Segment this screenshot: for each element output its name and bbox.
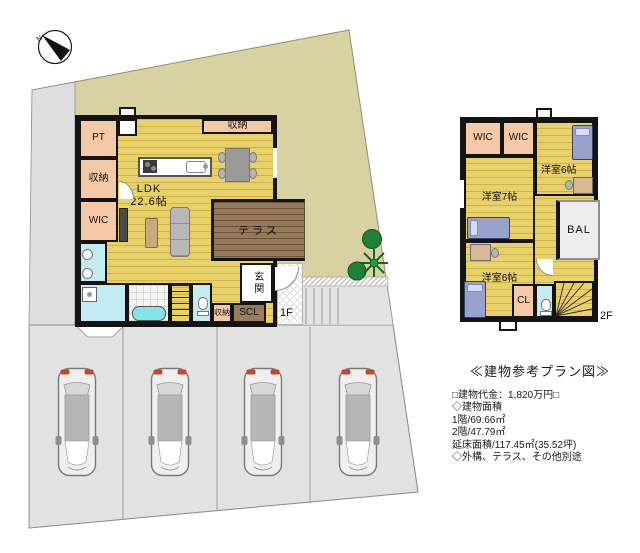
total-area: 延床面積/117.45㎡(35.52坪) [452, 440, 628, 452]
floor2-tag: 2F [600, 310, 613, 322]
stove-burner [151, 166, 156, 171]
bed-pillow [467, 284, 483, 292]
dining-table [225, 148, 250, 182]
bed-pillow [470, 220, 478, 236]
balcony-label: BAL [567, 224, 591, 236]
toilet-tank [197, 311, 209, 316]
room-wic-1f-label: WIC [89, 216, 108, 227]
toilet-tank [540, 311, 552, 316]
bathtub-icon [132, 306, 166, 321]
kitchen-counter [138, 157, 212, 177]
room-laundry [79, 283, 127, 323]
room-wic2f-2-label: WIC [509, 133, 528, 144]
price-line: □建物代金：1,820万円□ [452, 390, 628, 402]
toilet-icon [198, 297, 208, 310]
terrace: テラス [211, 199, 305, 261]
bay-window-top-2f [536, 108, 552, 119]
plan-info-block: ≪建物参考プラン図≫ □建物代金：1,820万円□ ◇建物面積 1階/69.66… [452, 361, 628, 464]
low-table [145, 218, 158, 248]
compass: N [36, 31, 72, 64]
side-path [29, 82, 75, 325]
shrub-icon [348, 262, 366, 280]
desk-chair [565, 180, 573, 190]
room-entrance: 玄関 [240, 263, 273, 303]
toilet-icon [541, 299, 551, 311]
room-pt: PT [79, 119, 118, 158]
room-cl: CL [512, 284, 535, 318]
sink-icon [82, 249, 93, 260]
room-bedroom6-top-label: 洋室6帖 [541, 166, 577, 177]
hall-door-arc [536, 259, 553, 276]
window-2f-left [460, 180, 464, 208]
note-line: ◇外構、テラス、その他別途 [452, 452, 628, 464]
bed [467, 217, 510, 239]
room-storage-left-label: 収納 [89, 174, 109, 185]
floor2-area: 2階/47.79㎡ [452, 427, 628, 439]
dining-chair [249, 168, 257, 179]
bay-window-top-1f [119, 107, 136, 117]
room-washroom [79, 242, 107, 283]
window-1f-right [273, 148, 277, 178]
sofa [170, 207, 190, 257]
area-heading: ◇建物面積 [452, 402, 628, 414]
room-wic2f-2: WIC [502, 121, 535, 156]
room-toilet-2f [535, 284, 554, 318]
room-storage-small-label: 収納 [214, 309, 230, 317]
room-storage-top: 収納 [202, 119, 273, 134]
stairs-2f-treads [556, 283, 592, 316]
room-pt-label: PT [92, 133, 105, 144]
stove-burner [145, 162, 150, 167]
balcony: BAL [556, 200, 600, 260]
floor1-area: 1階/69.66㎡ [452, 415, 628, 427]
car-icon [242, 369, 285, 476]
dining-chair [249, 152, 257, 163]
bed [464, 281, 486, 318]
stairs-2f [554, 281, 594, 318]
desk [573, 177, 593, 194]
room-entrance-label: 玄関 [251, 271, 262, 295]
room-bedroom7-label: 洋室7帖 [482, 193, 518, 204]
dining-chair [218, 152, 226, 163]
plan-info-title: ≪建物参考プラン図≫ [452, 361, 628, 380]
desk-chair [491, 248, 499, 258]
floor-plan-scene: N PT 収納 WIC [0, 0, 640, 553]
room-bathroom [127, 283, 170, 323]
room-storage-small: 収納 [212, 303, 232, 323]
room-cl-label: CL [517, 296, 530, 307]
shrub-icon [363, 230, 382, 249]
bed [572, 125, 593, 160]
bay-window-bottom-2f [499, 320, 517, 331]
room-scl-label: SCL [239, 308, 258, 319]
room-scl: SCL [232, 303, 266, 323]
desk [470, 244, 491, 261]
faucet-icon [203, 164, 208, 169]
room-wic2f-1: WIC [464, 121, 502, 156]
room-wic2f-1-label: WIC [473, 133, 492, 144]
washing-machine-drum [87, 292, 92, 297]
car-icon [149, 369, 192, 476]
floor1-tag: 1F [280, 307, 293, 319]
tv-board [119, 208, 128, 242]
car-icon [337, 369, 380, 476]
room-toilet-1f [191, 283, 212, 323]
terrace-label: テラス [238, 222, 280, 238]
stairs-1f [170, 283, 191, 323]
sink-icon [82, 268, 93, 279]
bed-pillow [575, 128, 590, 136]
dining-chair [218, 168, 226, 179]
car-icon [56, 369, 99, 476]
room-pantry-closet [118, 119, 137, 136]
palm-center [370, 259, 378, 267]
room-storage-top-label: 収納 [228, 121, 248, 132]
